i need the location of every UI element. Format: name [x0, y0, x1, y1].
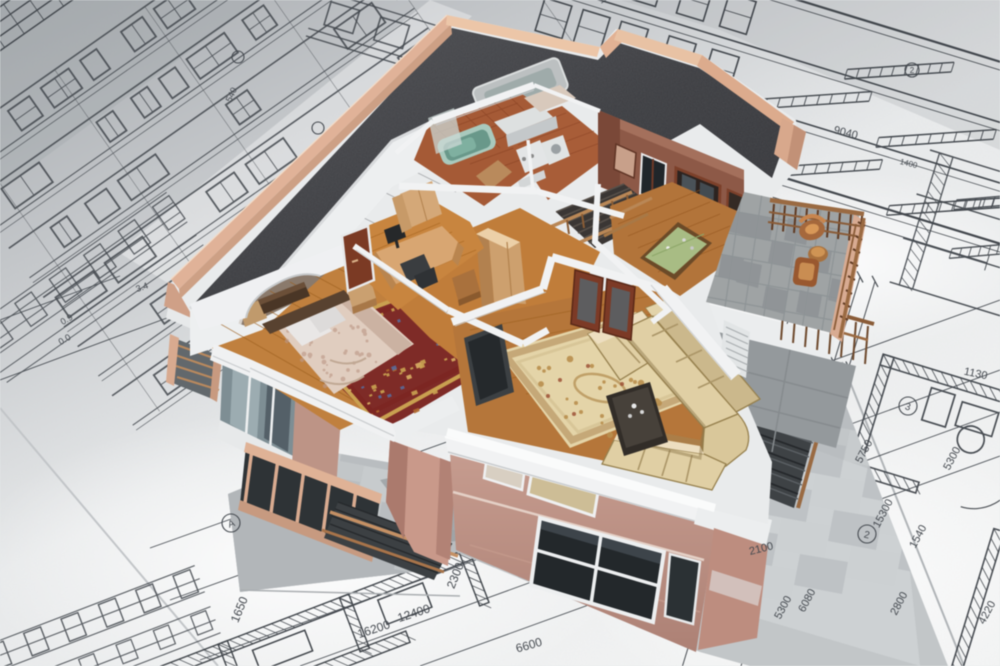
svg-text:2: 2 — [910, 66, 915, 75]
